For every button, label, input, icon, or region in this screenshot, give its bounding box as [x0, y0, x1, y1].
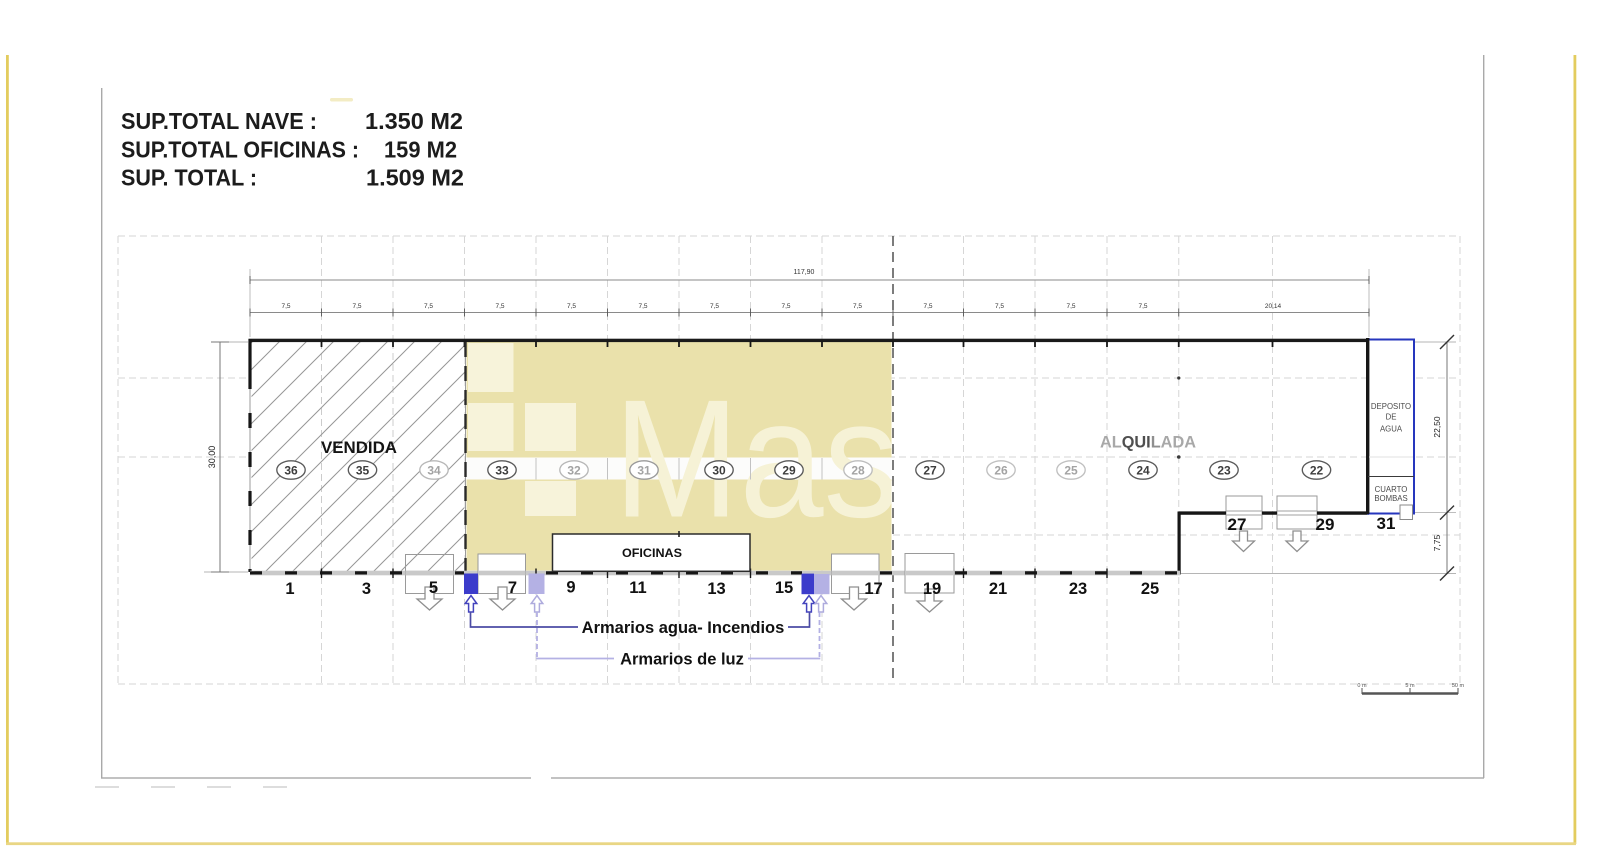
svg-text:0 m: 0 m: [1357, 683, 1367, 689]
svg-text:25: 25: [1141, 580, 1159, 598]
svg-text:OFICINAS: OFICINAS: [622, 548, 682, 560]
svg-text:ALQUILADA: ALQUILADA: [1100, 433, 1196, 452]
svg-text:22,50: 22,50: [1432, 416, 1442, 438]
svg-text:7,5: 7,5: [781, 303, 790, 310]
svg-text:11: 11: [629, 579, 646, 597]
svg-text:50 m: 50 m: [1452, 683, 1465, 689]
svg-text:7,5: 7,5: [1066, 303, 1075, 310]
svg-text:5: 5: [429, 579, 438, 597]
svg-text:7,5: 7,5: [923, 303, 932, 310]
svg-text:7,5: 7,5: [352, 303, 361, 310]
svg-text:28: 28: [851, 464, 865, 478]
svg-text:17: 17: [864, 580, 882, 598]
svg-text:35: 35: [356, 464, 370, 478]
svg-text:1.509 M2: 1.509 M2: [366, 165, 464, 191]
svg-text:13: 13: [707, 580, 725, 598]
svg-text:34: 34: [427, 464, 441, 478]
svg-text:DE: DE: [1386, 413, 1397, 422]
svg-text:23: 23: [1217, 464, 1231, 478]
svg-text:7,75: 7,75: [1432, 534, 1442, 551]
svg-text:BOMBAS: BOMBAS: [1374, 494, 1407, 503]
svg-text:1.350 M2: 1.350 M2: [365, 108, 463, 134]
svg-text:9: 9: [566, 579, 575, 597]
svg-text:22: 22: [1310, 464, 1324, 478]
svg-text:5 m: 5 m: [1405, 683, 1415, 689]
svg-text:24: 24: [1136, 464, 1150, 478]
svg-text:19: 19: [923, 580, 941, 598]
svg-text:159 M2: 159 M2: [384, 137, 457, 163]
svg-text:15: 15: [775, 579, 793, 597]
svg-text:VENDIDA: VENDIDA: [321, 439, 397, 457]
svg-text:25: 25: [1064, 464, 1078, 478]
svg-text:30,00: 30,00: [207, 446, 217, 469]
svg-text:36: 36: [284, 464, 298, 478]
svg-text:29: 29: [1316, 515, 1335, 534]
svg-text:21: 21: [989, 580, 1007, 598]
svg-text:AGUA: AGUA: [1380, 425, 1403, 434]
svg-text:SUP. TOTAL :: SUP. TOTAL :: [121, 165, 257, 191]
svg-text:3: 3: [362, 580, 371, 598]
svg-text:7,5: 7,5: [995, 303, 1004, 310]
svg-text:7,5: 7,5: [853, 303, 862, 310]
svg-text:DEPOSITO: DEPOSITO: [1371, 402, 1411, 411]
svg-text:30: 30: [712, 464, 726, 478]
svg-text:7,5: 7,5: [495, 303, 504, 310]
svg-text:7,5: 7,5: [424, 303, 433, 310]
svg-text:1: 1: [285, 580, 294, 598]
svg-text:7,5: 7,5: [1138, 303, 1147, 310]
svg-text:7,5: 7,5: [638, 303, 647, 310]
svg-text:7,5: 7,5: [710, 303, 719, 310]
svg-text:SUP.TOTAL OFICINAS :: SUP.TOTAL OFICINAS :: [121, 137, 359, 163]
svg-text:Armarios agua- Incendios: Armarios agua- Incendios: [582, 619, 785, 637]
svg-text:31: 31: [1377, 514, 1396, 533]
svg-text:Mas: Mas: [614, 364, 900, 552]
svg-text:SUP.TOTAL NAVE :: SUP.TOTAL NAVE :: [121, 108, 317, 134]
svg-text:20,14: 20,14: [1265, 303, 1282, 310]
svg-text:117,90: 117,90: [794, 269, 815, 276]
svg-text:31: 31: [637, 464, 651, 478]
svg-text:27: 27: [1228, 515, 1247, 534]
svg-text:26: 26: [994, 464, 1008, 478]
svg-text:29: 29: [782, 464, 796, 478]
svg-text:23: 23: [1069, 580, 1087, 598]
svg-text:7: 7: [508, 579, 517, 597]
svg-text:32: 32: [567, 464, 581, 478]
svg-text:Armarios de luz: Armarios de luz: [620, 651, 744, 669]
svg-text:27: 27: [923, 464, 937, 478]
svg-text:7,5: 7,5: [567, 303, 576, 310]
svg-text:33: 33: [495, 464, 509, 478]
svg-text:7,5: 7,5: [281, 303, 290, 310]
svg-text:CUARTO: CUARTO: [1375, 485, 1408, 494]
